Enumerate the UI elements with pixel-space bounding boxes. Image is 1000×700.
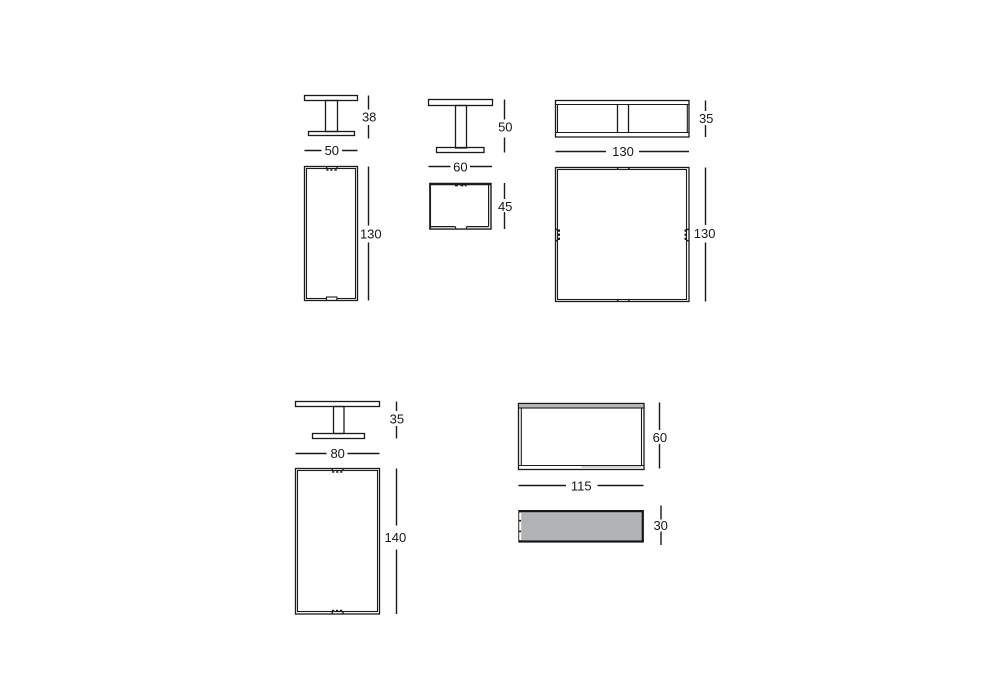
svg-text:30: 30 xyxy=(653,518,667,533)
svg-text:50: 50 xyxy=(325,143,339,158)
svg-text:35: 35 xyxy=(699,111,713,126)
svg-text:38: 38 xyxy=(362,109,376,124)
svg-text:130: 130 xyxy=(360,226,382,241)
svg-text:115: 115 xyxy=(571,478,592,493)
svg-text:50: 50 xyxy=(498,119,512,134)
svg-text:45: 45 xyxy=(498,199,512,214)
svg-text:35: 35 xyxy=(390,412,404,427)
svg-text:60: 60 xyxy=(653,430,667,445)
svg-text:60: 60 xyxy=(453,160,467,175)
svg-text:80: 80 xyxy=(330,446,344,461)
svg-text:130: 130 xyxy=(694,226,716,241)
svg-text:140: 140 xyxy=(385,530,407,545)
svg-text:130: 130 xyxy=(612,144,634,159)
